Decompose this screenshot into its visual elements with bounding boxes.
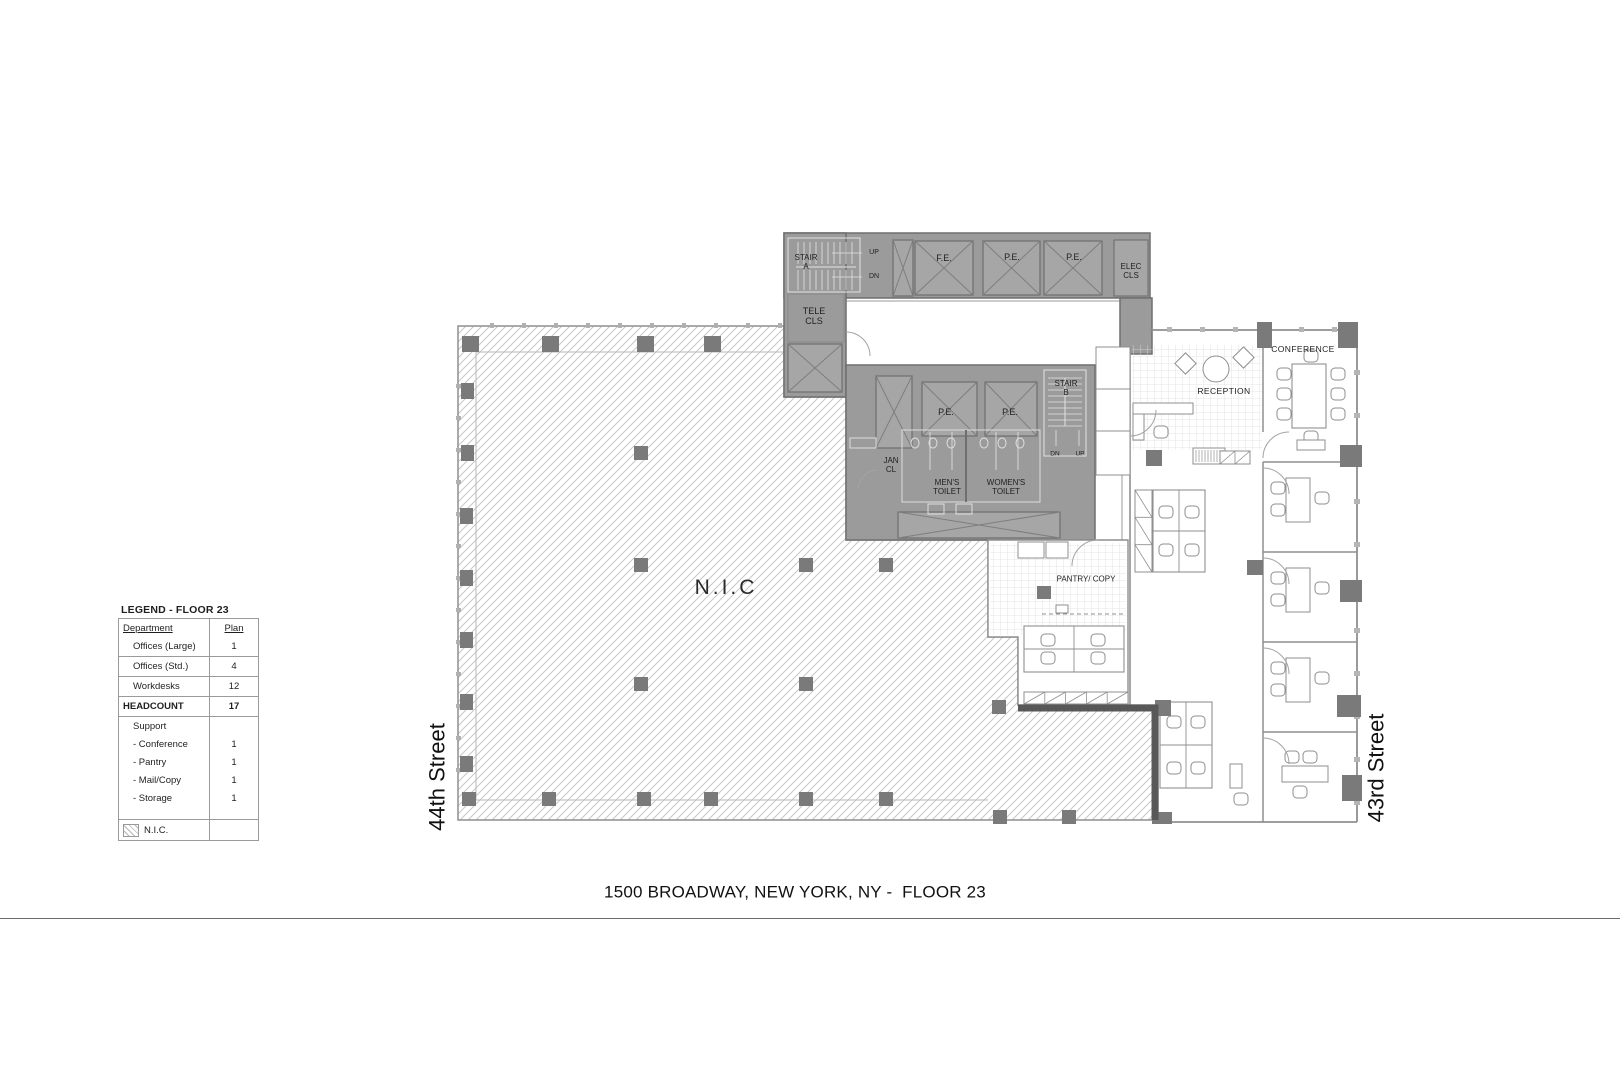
nic-hatch-swatch bbox=[123, 824, 139, 837]
label-stair-a: STAIR A bbox=[795, 254, 818, 272]
legend-col-department: Department bbox=[123, 623, 173, 634]
legend-panel: LEGEND - FLOOR 23 Department Plan Office… bbox=[118, 604, 259, 841]
label-pe-2: P.E. bbox=[1066, 252, 1082, 262]
legend-support-row: Support bbox=[119, 717, 258, 735]
label-nic-area: N.I.C bbox=[695, 576, 758, 600]
legend-row: Workdesks 12 bbox=[119, 677, 258, 697]
legend-row: - Pantry 1 bbox=[119, 753, 258, 771]
legend-title: LEGEND - FLOOR 23 bbox=[118, 604, 259, 616]
legend-nic-label: N.I.C. bbox=[144, 825, 168, 836]
legend-table: Department Plan Offices (Large) 1 Office… bbox=[118, 618, 259, 841]
label-fe: F.E. bbox=[936, 253, 952, 263]
floorplan-page: STAIR A UP DN F.E. P.E. P.E. ELEC CLS TE… bbox=[0, 0, 1620, 1080]
legend-nic-row: N.I.C. bbox=[119, 819, 258, 840]
legend-header-row: Department Plan bbox=[119, 619, 258, 637]
label-pe-4: P.E. bbox=[1002, 407, 1018, 417]
label-pe-1: P.E. bbox=[1004, 252, 1020, 262]
label-dn-a: DN bbox=[869, 273, 879, 281]
label-pe-3: P.E. bbox=[938, 407, 954, 417]
label-conference: CONFERENCE bbox=[1271, 345, 1335, 355]
label-jan-cl: JAN CL bbox=[883, 457, 898, 475]
label-pantry-copy: PANTRY/ COPY bbox=[1057, 576, 1116, 585]
street-label-43rd: 43rd Street bbox=[1365, 714, 1390, 823]
label-mens-toilet: MEN'S TOILET bbox=[933, 479, 961, 497]
label-elec-cls: ELEC CLS bbox=[1121, 263, 1142, 281]
label-up-b: UP bbox=[1075, 450, 1084, 457]
footer-rule bbox=[0, 918, 1620, 919]
legend-row: Offices (Std.) 4 bbox=[119, 657, 258, 677]
legend-headcount-row: HEADCOUNT 17 bbox=[119, 697, 258, 717]
legend-row: Offices (Large) 1 bbox=[119, 637, 258, 657]
label-womens-toilet: WOMEN'S TOILET bbox=[987, 479, 1025, 497]
label-dn-b: DN bbox=[1050, 450, 1059, 457]
legend-spacer-row bbox=[119, 808, 258, 819]
legend-row: - Conference 1 bbox=[119, 735, 258, 753]
legend-col-plan: Plan bbox=[224, 623, 243, 634]
label-reception: RECEPTION bbox=[1197, 387, 1250, 397]
label-up-a: UP bbox=[869, 249, 879, 257]
label-stair-b: STAIR B bbox=[1055, 380, 1078, 398]
street-label-44th: 44th Street bbox=[426, 723, 451, 831]
label-tele-cls: TELE CLS bbox=[803, 306, 826, 326]
drawing-title: 1500 BROADWAY, NEW YORK, NY - FLOOR 23 bbox=[604, 882, 986, 901]
legend-row: - Storage 1 bbox=[119, 789, 258, 808]
legend-row: - Mail/Copy 1 bbox=[119, 771, 258, 789]
